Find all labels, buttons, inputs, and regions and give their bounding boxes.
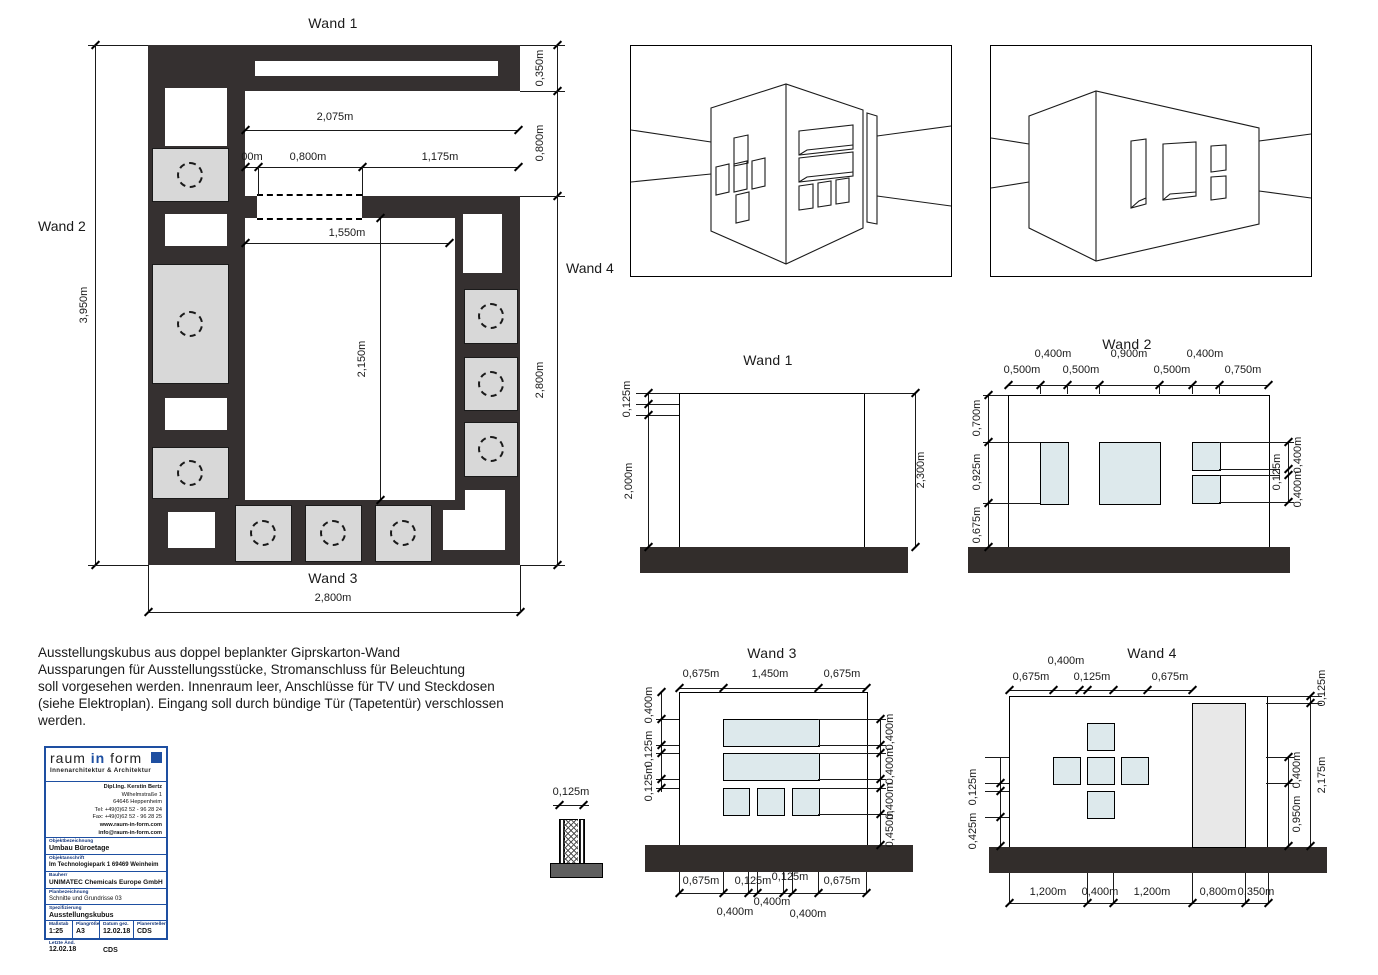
cell-value: CDS	[134, 927, 166, 936]
lamp-box	[464, 289, 518, 344]
extension-line	[1266, 757, 1294, 758]
cell-letzte-aend: Letzte Änd. 12.02.18	[46, 940, 100, 956]
wall-board-layer	[579, 819, 585, 865]
field-value: Im Technologiepark 1 69469 Weinheim	[46, 861, 166, 869]
extension-line	[1067, 385, 1068, 394]
extension-line	[636, 415, 679, 416]
wall-niche	[1121, 757, 1149, 785]
extension-line	[863, 393, 915, 394]
extension-line	[1219, 385, 1220, 394]
field-objektbezeichnung: Objektbezeichnung Umbau Büroetage	[46, 838, 166, 855]
wall-niche	[1087, 723, 1115, 751]
extension-line	[362, 167, 363, 196]
dim-label: 0,675m	[824, 875, 861, 887]
wall-niche	[1040, 442, 1069, 505]
perspective-view-2	[990, 45, 1312, 277]
field-value: Schnitte und Grundrisse 03	[46, 895, 166, 903]
dim-label: 0,125m	[643, 765, 655, 802]
niche-cutout	[165, 214, 227, 246]
extension-line	[520, 565, 521, 612]
door-panel	[1192, 703, 1246, 848]
note-line: (siehe Elektroplan). Eingang soll durch …	[38, 696, 504, 711]
dim-label: 0,400m	[643, 687, 655, 724]
niche-cutout	[255, 61, 498, 76]
wall-niche	[1087, 791, 1115, 819]
contact-city: 64646 Heppenheim	[50, 799, 162, 807]
dim-label: 0,500m	[1063, 364, 1100, 376]
wall-niche	[757, 788, 785, 816]
contact-street: Wilhelmstraße 1	[50, 792, 162, 800]
extension-line	[636, 404, 679, 405]
lamp-circle-icon	[177, 460, 203, 486]
lamp-circle-icon	[177, 311, 203, 337]
field-planbezeichnung: Planbezeichnung Schnitte und Grundrisse …	[46, 889, 166, 905]
dim-tick	[862, 888, 871, 897]
contact-web: www.raum-in-form.com	[50, 822, 162, 830]
cell-change-author: CDS	[100, 940, 121, 956]
dim-label: 0,800m	[290, 151, 327, 163]
dim-line	[380, 218, 381, 500]
logo-text-raum: raum	[50, 750, 91, 766]
dim-label: 1,550m	[329, 227, 366, 239]
cell-label: Datum gez.	[100, 921, 133, 927]
extension-line	[1219, 442, 1294, 443]
dim-label: 2,800m	[534, 362, 546, 399]
dim-label: 0,400m	[1035, 348, 1072, 360]
dim-label: 0,675m	[1152, 671, 1189, 683]
extension-line	[88, 565, 148, 566]
extension-line	[88, 45, 148, 46]
dim-label: 0,675m	[683, 668, 720, 680]
cell-plangroesse: Plangröße A3	[73, 921, 100, 939]
perspective-cube-drawing	[991, 46, 1311, 276]
wall-niche	[1087, 757, 1115, 785]
cell-datum: Datum gez. 12.02.18	[100, 921, 134, 939]
dim-label: 2,175m	[1316, 757, 1328, 794]
title-block-grid: Maßstab 1:25 Plangröße A3 Datum gez. 12.…	[46, 921, 166, 940]
field-value: Ausstellungskubus	[46, 911, 166, 920]
dim-line	[679, 688, 866, 689]
dim-label: 0,400m	[717, 906, 754, 918]
floor-band	[640, 547, 908, 573]
lamp-circle-icon	[320, 520, 346, 546]
lamp-circle-icon	[250, 520, 276, 546]
note-line: soll vorgesehen werden. Innenraum leer, …	[38, 679, 495, 694]
wall-niche	[723, 719, 820, 747]
lamp-box	[464, 422, 518, 477]
dim-label: 2,000m	[623, 463, 635, 500]
extension-line	[818, 788, 886, 789]
floor-plan: 2,075m 00m 0,800m 1,175m 1,550m 2,150m	[148, 45, 520, 565]
lamp-box	[235, 505, 292, 562]
contact-fax: Fax: +49(0)62 52 - 96 28 25	[50, 814, 162, 822]
dim-line	[95, 45, 96, 565]
dim-label: 1,450m	[752, 668, 789, 680]
elevation-title-wand4: Wand 4	[1127, 645, 1177, 661]
cell-label: Planersteller	[134, 921, 166, 927]
niche-cutout	[443, 510, 505, 550]
dim-label: 0,125m	[553, 786, 590, 798]
door-dashed	[257, 194, 362, 220]
dim-line	[245, 167, 518, 168]
extension-line	[1219, 502, 1294, 503]
contact-name: Dipl.Ing. Kerstin Bertz	[50, 784, 162, 792]
floor-band	[989, 847, 1327, 873]
dim-label: 0,400m	[1292, 437, 1304, 474]
dim-line	[1288, 757, 1289, 846]
dim-label: 0,125m	[1074, 671, 1111, 683]
cell-value: A3	[73, 927, 99, 936]
dim-line	[1009, 690, 1192, 691]
cell-value: 12.02.18	[100, 927, 133, 936]
dim-label: 0,800m	[1200, 886, 1237, 898]
extension-line	[818, 745, 886, 746]
dim-label: 2,300m	[915, 452, 927, 489]
niche-cutout	[165, 398, 227, 430]
extension-line	[1159, 385, 1160, 394]
lamp-box	[305, 505, 362, 562]
cell-value: 1:25	[46, 927, 72, 936]
logo-raum-in-form: raum in form	[46, 748, 166, 766]
dim-label: 1,175m	[422, 151, 459, 163]
dim-line	[1009, 903, 1268, 904]
dim-label: 0,125m	[621, 381, 633, 418]
cell-massstab: Maßstab 1:25	[46, 921, 73, 939]
dim-label: 0,675m	[1013, 671, 1050, 683]
dim-label: 0,675m	[683, 875, 720, 887]
title-block: raum in form Innenarchitektur & Architek…	[44, 746, 168, 940]
extension-line	[520, 91, 565, 92]
lamp-box	[375, 505, 432, 562]
wall-niche	[792, 788, 820, 816]
dim-label: 0,350m	[534, 50, 546, 87]
logo-text-in: in	[91, 750, 105, 766]
contact-tel: Tel: +49(0)62 52 - 96 28 24	[50, 807, 162, 815]
extension-line	[148, 565, 149, 612]
dim-label: 00m	[241, 151, 262, 163]
dim-tick	[445, 238, 454, 247]
niche-cutout	[168, 512, 215, 548]
dim-label: 0,400m	[1048, 655, 1085, 667]
dim-line	[1000, 757, 1001, 846]
dim-label: 2,800m	[315, 592, 352, 604]
logo-text-form: form	[105, 750, 142, 766]
dim-label: 0,900m	[1111, 348, 1148, 360]
dim-label: 0,400m	[790, 908, 827, 920]
extension-line	[1040, 385, 1041, 394]
field-value: Umbau Büroetage	[46, 844, 166, 853]
dim-tick	[514, 162, 523, 171]
dim-label: 0,125m	[967, 769, 979, 806]
dim-label: 0,125m	[1271, 454, 1283, 491]
title-block-logo: raum in form Innenarchitektur & Architek…	[46, 748, 166, 782]
dim-tick	[911, 542, 920, 551]
lamp-circle-icon	[390, 520, 416, 546]
dim-label: 0,400m	[1187, 348, 1224, 360]
dim-tick	[1264, 380, 1273, 389]
extension-line	[818, 753, 886, 754]
lamp-box	[152, 148, 229, 202]
plan-label-wand4: Wand 4	[566, 260, 614, 276]
dim-line	[557, 45, 558, 565]
lamp-box	[152, 264, 229, 384]
dim-line	[1310, 696, 1311, 846]
title-block-contact: Dipl.Ing. Kerstin Bertz Wilhelmstraße 1 …	[46, 782, 166, 838]
dim-tick	[1188, 685, 1197, 694]
cell-value: 12.02.18	[46, 946, 100, 954]
dim-line	[880, 719, 881, 845]
extension-line	[1266, 783, 1294, 784]
note-line: Ausstellungskubus aus doppel beplankter …	[38, 645, 400, 660]
extension-line	[1099, 385, 1100, 394]
cell-label: Maßstab	[46, 921, 72, 927]
note-line: Aussparungen für Ausstellungsstücke, Str…	[38, 662, 465, 677]
cell-planersteller: Planersteller CDS	[134, 921, 166, 939]
extension-line	[520, 565, 565, 566]
contact-email: info@raum-in-form.com	[50, 830, 162, 838]
dim-label: 0,675m	[971, 507, 983, 544]
dim-label: 0,500m	[1154, 364, 1191, 376]
extension-line	[983, 442, 1040, 443]
dim-label: 0,425m	[967, 813, 979, 850]
extension-line	[983, 503, 1040, 504]
dim-label: 2,150m	[356, 341, 368, 378]
dim-label: 1,200m	[1030, 886, 1067, 898]
wall-niche	[1192, 442, 1221, 471]
floor-band	[968, 547, 1290, 573]
extension-line	[1009, 873, 1010, 903]
dim-label: 0,800m	[534, 125, 546, 162]
dim-label: 0,675m	[824, 668, 861, 680]
logo-square-icon	[151, 752, 162, 763]
dim-label: 0,400m	[1082, 886, 1119, 898]
field-objektanschrift: Objektanschrift Im Technologiepark 1 694…	[46, 855, 166, 872]
wall-niche	[723, 788, 750, 816]
wall-insulation-core	[564, 819, 578, 865]
elevation-title-wand1: Wand 1	[743, 352, 793, 368]
logo-subtitle: Innenarchitektur & Architektur	[46, 766, 166, 775]
extension-line	[520, 196, 565, 197]
lamp-box	[152, 447, 229, 499]
dim-label: 0,125m	[1316, 670, 1328, 707]
dim-label: 0,125m	[643, 731, 655, 768]
lamp-circle-icon	[478, 371, 504, 397]
dim-label: 0,500m	[1004, 364, 1041, 376]
dim-tick	[514, 125, 523, 134]
floor-band	[645, 845, 913, 872]
extension-line	[1192, 873, 1193, 903]
dim-line	[679, 893, 866, 894]
perspective-view-1	[630, 45, 952, 277]
elevation-wall-wand1	[679, 393, 865, 549]
extension-line	[1266, 703, 1322, 704]
dim-label: 0,125m	[772, 871, 809, 883]
extension-line	[985, 757, 1009, 758]
lamp-box	[464, 357, 518, 411]
extension-line	[636, 393, 679, 394]
dim-label: 0,350m	[1238, 886, 1275, 898]
wall-niche	[1099, 442, 1161, 505]
lamp-circle-icon	[478, 303, 504, 329]
dim-label: 0,400m	[884, 748, 896, 785]
field-bauherr: Bauherr UNIMATEC Chemicals Europe GmbH	[46, 872, 166, 889]
extension-line	[818, 814, 886, 815]
niche-cutout	[165, 88, 227, 146]
dim-label: 0,925m	[971, 454, 983, 491]
dim-label: 0,400m	[1291, 752, 1303, 789]
wall-niche	[1192, 475, 1221, 504]
drawing-sheet: Wand 1 2,075m	[0, 0, 1378, 975]
dim-label: 0,400m	[754, 896, 791, 908]
title-block-lastrow: Letzte Änd. 12.02.18 CDS	[46, 940, 166, 956]
field-value: UNIMATEC Chemicals Europe GmbH	[46, 878, 166, 887]
dim-label: 0,400m	[884, 714, 896, 751]
wall-niche	[1053, 757, 1081, 785]
plan-label-wand2: Wand 2	[38, 218, 86, 234]
lamp-circle-icon	[177, 162, 203, 188]
extension-line	[818, 779, 886, 780]
niche-cutout	[463, 214, 502, 273]
wall-niche	[723, 753, 820, 781]
dim-label: 3,950m	[78, 287, 90, 324]
note-line: werden.	[38, 713, 86, 728]
dim-label: 0,450m	[884, 811, 896, 848]
dim-label: 0,700m	[971, 400, 983, 437]
dim-tick	[1264, 898, 1273, 907]
extension-line	[520, 45, 565, 46]
dim-label: 0,750m	[1225, 364, 1262, 376]
dim-label: 0,400m	[1292, 471, 1304, 508]
dim-label: 2,075m	[317, 111, 354, 123]
plan-title-wand1: Wand 1	[308, 15, 358, 31]
dim-line	[245, 130, 518, 131]
cell-label: Plangröße	[73, 921, 99, 927]
dim-line	[245, 243, 449, 244]
extension-line	[1266, 696, 1322, 697]
extension-line	[258, 167, 259, 196]
dim-label: 0,950m	[1291, 796, 1303, 833]
elevation-title-wand3: Wand 3	[747, 645, 797, 661]
dim-label: 0,125m	[735, 875, 772, 887]
detail-base	[550, 863, 603, 878]
dim-line	[1008, 385, 1268, 386]
dim-line	[148, 612, 520, 613]
lamp-circle-icon	[478, 436, 504, 462]
dim-label: 1,200m	[1134, 886, 1171, 898]
dim-line	[988, 395, 989, 547]
extension-line	[1192, 385, 1193, 394]
field-spezifizierung: Spezifizierung Ausstellungskubus	[46, 905, 166, 921]
extension-line	[818, 719, 886, 720]
plan-label-wand3: Wand 3	[308, 570, 358, 586]
perspective-cube-drawing	[631, 46, 951, 276]
